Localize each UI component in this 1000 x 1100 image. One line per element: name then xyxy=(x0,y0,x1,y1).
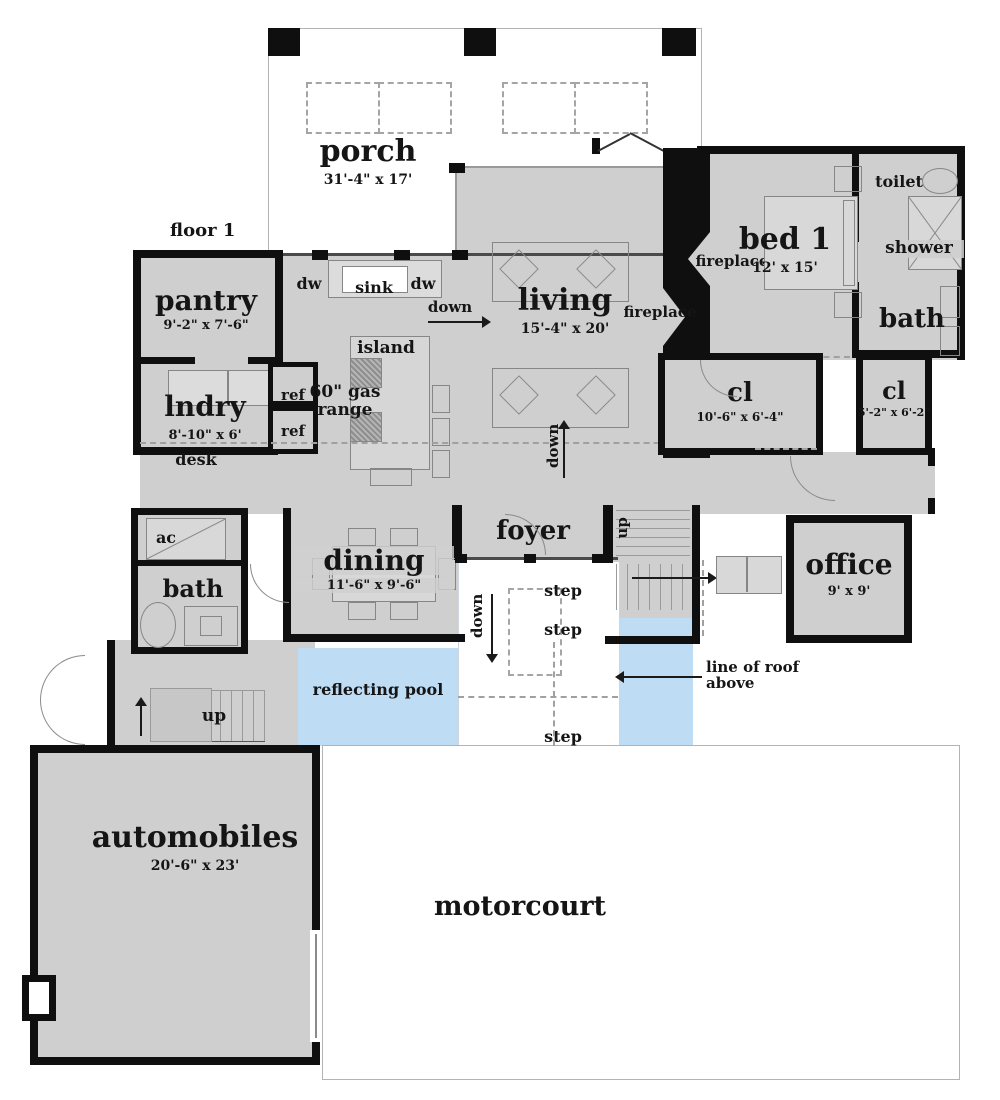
garage-door-line xyxy=(315,934,317,1038)
shower-stall xyxy=(908,196,962,270)
up-arrow-head xyxy=(135,697,147,706)
island-end-cabinet xyxy=(370,468,412,486)
motorcourt-area xyxy=(322,745,960,1080)
step1-label: step xyxy=(530,583,596,600)
roof-arrow-line xyxy=(622,676,702,678)
wall-segment xyxy=(133,357,195,364)
pantry-dims: 9'-2" x 7'-6" xyxy=(126,318,286,333)
bed1-label: bed 1 xyxy=(700,224,870,256)
pantry-label: pantry xyxy=(126,286,286,315)
island-label: island xyxy=(336,340,436,358)
up-arrow-line xyxy=(632,577,712,579)
wall-post xyxy=(455,554,467,563)
dining-label: dining xyxy=(294,546,454,575)
wall-post xyxy=(452,250,468,260)
step2-label: step xyxy=(530,622,596,639)
roof-arrow-head xyxy=(615,671,624,683)
automobiles-dims: 20'-6" x 23' xyxy=(85,858,305,874)
stair-treads xyxy=(616,564,690,610)
skylight-outline xyxy=(306,82,380,134)
down-arrow-line xyxy=(491,594,493,656)
sink-label: sink xyxy=(346,280,402,297)
porch-column xyxy=(464,28,496,56)
nightstand xyxy=(834,166,862,192)
automobiles-label: automobiles xyxy=(85,822,305,854)
floor-label: floor 1 xyxy=(170,222,270,241)
office-dims: 9' x 9' xyxy=(769,584,929,599)
wall-segment xyxy=(928,448,935,466)
porch-label: porch xyxy=(288,136,448,168)
up-arrow-line xyxy=(140,704,142,736)
wall-post xyxy=(394,250,410,260)
wall-segment xyxy=(283,634,465,642)
porch-column xyxy=(268,28,300,56)
living-dims: 15'-4" x 20' xyxy=(485,321,645,337)
porch-column xyxy=(662,28,696,56)
step3-label: step xyxy=(530,729,596,746)
cl-small-label: cl xyxy=(856,378,932,403)
down-arrow-line xyxy=(563,428,565,478)
bath-left-sink xyxy=(200,616,222,636)
range-label: 60" gas range xyxy=(300,384,390,420)
skylight-outline xyxy=(574,82,648,134)
floor-plan: porch 31'-4" x 17' reflecting pool motor… xyxy=(0,0,1000,1100)
roof-line-label: line of roof above xyxy=(706,660,816,692)
island-stool xyxy=(432,450,450,478)
wall-post xyxy=(449,163,465,173)
cl-small-dims: 5'-2" x 6'-2" xyxy=(850,406,938,419)
cl-large-dims: 10'-6" x 6'-4" xyxy=(660,410,820,424)
entry-door-arc xyxy=(40,700,85,745)
lndry-label: lndry xyxy=(125,392,285,421)
ref-bottom-label: ref xyxy=(268,424,318,440)
toilet-fixture xyxy=(922,168,958,194)
up-garage-label: up xyxy=(192,708,236,726)
automobiles-room xyxy=(30,745,320,1065)
steps-dashed-line xyxy=(458,696,618,700)
wall-segment xyxy=(133,250,141,455)
dashed-ceiling-line xyxy=(140,442,700,446)
office-label: office xyxy=(769,550,929,579)
wall-segment xyxy=(928,498,935,514)
bath-door-arc xyxy=(250,564,289,603)
cl-large-label: cl xyxy=(660,380,820,407)
fireplace-living-label: fireplace xyxy=(618,305,702,321)
bath-left-label: bath xyxy=(138,576,248,601)
up-stair-label: up xyxy=(615,501,631,555)
dashed-center-line xyxy=(553,642,557,746)
bath-main-label: bath xyxy=(862,306,962,333)
wall-segment xyxy=(605,636,700,644)
ac-label: ac xyxy=(126,530,206,547)
dw-right-label: dw xyxy=(398,276,448,293)
down-arrow-head xyxy=(486,654,498,663)
dining-chair xyxy=(348,602,376,620)
wall-segment xyxy=(133,250,283,258)
wall-segment xyxy=(692,505,700,643)
down-kitchen-label: down xyxy=(420,300,480,316)
pool-label: reflecting pool xyxy=(308,682,448,699)
lndry-dims: 8'-10" x 6' xyxy=(125,428,285,443)
island-stool xyxy=(432,385,450,413)
wall-segment xyxy=(697,146,965,154)
down-center-label: down xyxy=(546,416,562,476)
dashed-roof-line xyxy=(702,560,706,636)
skylight-outline xyxy=(502,82,576,134)
wall-segment xyxy=(603,505,613,563)
dining-dims: 11'-6" x 9'-6" xyxy=(294,578,454,593)
porch-dims: 31'-4" x 17' xyxy=(288,172,448,188)
shower-label: shower xyxy=(874,240,964,258)
bathtub xyxy=(140,602,176,648)
garage-wall-notch xyxy=(22,975,56,1021)
dining-chair xyxy=(390,602,418,620)
dashed-line xyxy=(755,448,817,452)
wall-segment xyxy=(131,560,248,566)
motorcourt-label: motorcourt xyxy=(420,893,620,921)
wall-post xyxy=(312,250,328,260)
nightstand xyxy=(834,292,862,318)
dw-left-label: dw xyxy=(284,276,334,293)
desk-label: desk xyxy=(156,452,236,469)
stair-continuation-line xyxy=(746,556,748,592)
entry-door-arc xyxy=(40,655,85,700)
toilet-label: toilet xyxy=(872,174,926,191)
wall-post xyxy=(524,554,536,563)
bed1-dims: 12' x 15' xyxy=(700,260,870,276)
wall-segment xyxy=(107,640,115,752)
down-steps-label: down xyxy=(470,586,486,646)
skylight-outline xyxy=(378,82,452,134)
down-arrow-line xyxy=(428,321,484,323)
